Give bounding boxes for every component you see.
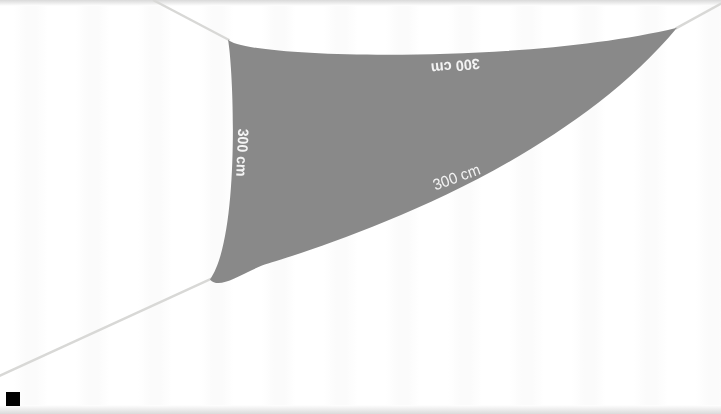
- svg-text:300 cm: 300 cm: [233, 128, 252, 177]
